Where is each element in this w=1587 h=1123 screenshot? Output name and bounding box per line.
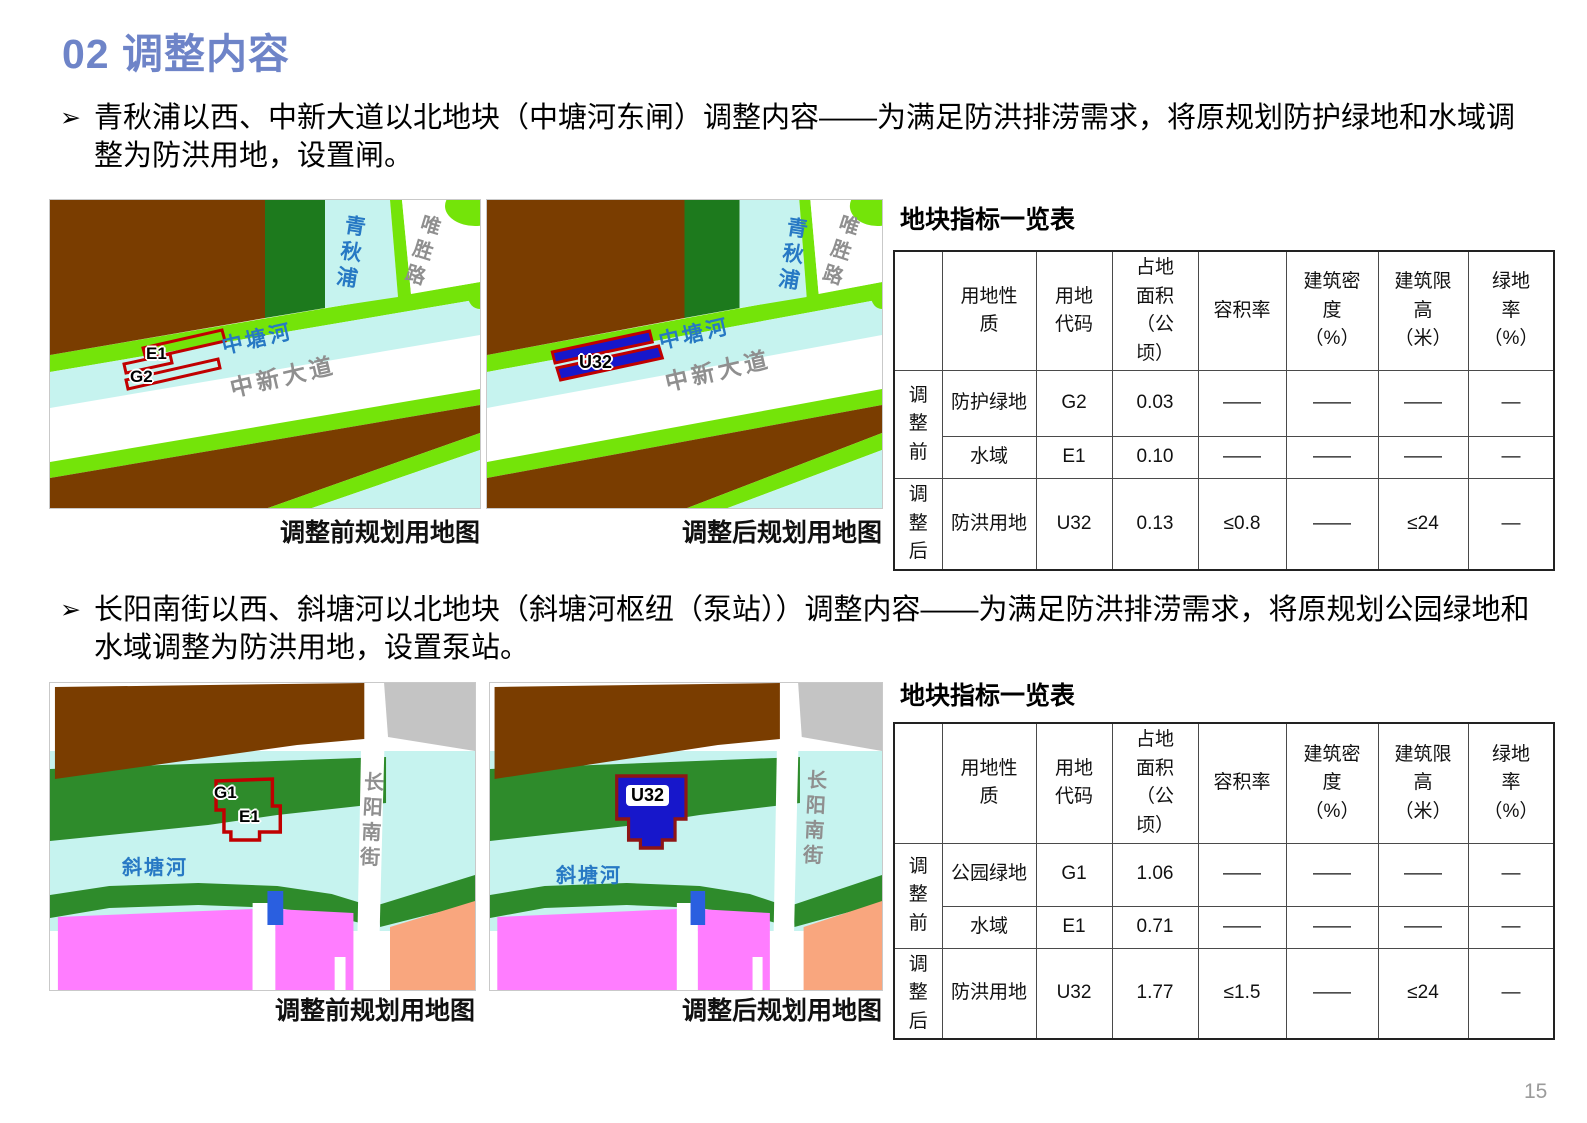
table-cell: U32 [1036, 479, 1112, 570]
header-cell: 绿地率（%） [1468, 723, 1554, 843]
page-title: 02 调整内容 [62, 20, 290, 80]
table-title-1: 地块指标一览表 [900, 200, 1075, 236]
table-cell: —— [1378, 437, 1468, 479]
table-cell: —— [1378, 906, 1468, 948]
table-cell: —— [1378, 843, 1468, 906]
table-cell: — [1468, 948, 1554, 1039]
bullet-1-text: 青秋浦以西、中新大道以北地块（中塘河东闸）调整内容——为满足防洪排涝需求，将原规… [94, 99, 1522, 175]
bullet-2-text: 长阳南街以西、斜塘河以北地块（斜塘河枢纽（泵站））调整内容——为满足防洪排涝需求… [94, 591, 1532, 667]
bullet-arrow-icon: ➢ [60, 591, 81, 667]
header-cell: 建筑限高（米） [1378, 251, 1468, 371]
header-cell: 建筑密度（%） [1286, 251, 1378, 371]
table-cell: 防护绿地 [942, 371, 1036, 437]
indicator-table-2: 用地性质 用地代码 占地面积（公顷） 容积率 建筑密度（%） 建筑限高（米） 绿… [893, 722, 1555, 1040]
river-label-xietanghe: 斜塘河 [122, 851, 188, 880]
map-after-site1: 青秋浦 唯胜路 中塘河 中新大道 U32 [487, 200, 882, 508]
table-cell: ≤1.5 [1198, 948, 1286, 1039]
header-cell: 容积率 [1198, 723, 1286, 843]
table-row: 水域 E1 0.71 —— —— —— — [894, 906, 1554, 948]
page-number: 15 [1524, 1080, 1547, 1104]
table-header-row: 用地性质 用地代码 占地面积（公顷） 容积率 建筑密度（%） 建筑限高（米） 绿… [894, 251, 1554, 371]
table-cell: ≤24 [1378, 479, 1468, 570]
table-cell: 水域 [942, 906, 1036, 948]
row-group-cell: 调整后 [894, 479, 942, 570]
table-cell: 水域 [942, 437, 1036, 479]
table-cell: —— [1286, 371, 1378, 437]
map-after-site2: 斜塘河 长阳南街 U32 [490, 683, 882, 990]
table-cell: 防洪用地 [942, 948, 1036, 1039]
map-caption-before-2: 调整前规划用地图 [50, 991, 475, 1027]
table-cell: —— [1286, 437, 1378, 479]
header-cell: 绿地率（%） [1468, 251, 1554, 371]
header-cell: 建筑限高（米） [1378, 723, 1468, 843]
table-cell: —— [1286, 843, 1378, 906]
table-cell: 公园绿地 [942, 843, 1036, 906]
table-cell: G1 [1036, 843, 1112, 906]
table-cell: — [1468, 437, 1554, 479]
table-cell: ≤24 [1378, 948, 1468, 1039]
bullet-arrow-icon: ➢ [60, 99, 81, 175]
table-cell: ≤0.8 [1198, 479, 1286, 570]
map-before-site1: 青秋浦 唯胜路 中塘河 中新大道 E1 G2 [50, 200, 480, 508]
header-cell: 用地性质 [942, 251, 1036, 371]
header-cell: 占地面积（公顷） [1112, 251, 1198, 371]
table-header-row: 用地性质 用地代码 占地面积（公顷） 容积率 建筑密度（%） 建筑限高（米） 绿… [894, 723, 1554, 843]
header-cell: 建筑密度（%） [1286, 723, 1378, 843]
table-cell: 0.71 [1112, 906, 1198, 948]
header-cell: 用地代码 [1036, 251, 1112, 371]
indicator-table-1: 用地性质 用地代码 占地面积（公顷） 容积率 建筑密度（%） 建筑限高（米） 绿… [893, 250, 1555, 571]
indicator-table-1-wrap: 用地性质 用地代码 占地面积（公顷） 容积率 建筑密度（%） 建筑限高（米） 绿… [893, 250, 1555, 571]
parcel-label-g1: G1 [214, 783, 237, 803]
table-row: 调整前 防护绿地 G2 0.03 —— —— —— — [894, 371, 1554, 437]
table-cell: —— [1198, 843, 1286, 906]
table-row: 调整后 防洪用地 U32 1.77 ≤1.5 —— ≤24 — [894, 948, 1554, 1039]
map-before-site2: 斜塘河 长阳南街 G1 E1 [50, 683, 475, 990]
parcel-label-e1: E1 [239, 807, 260, 827]
header-cell [894, 723, 942, 843]
table-cell: E1 [1036, 906, 1112, 948]
table-row: 调整后 防洪用地 U32 0.13 ≤0.8 —— ≤24 — [894, 479, 1554, 570]
table-cell: —— [1378, 371, 1468, 437]
table-cell: —— [1198, 371, 1286, 437]
bullet-2: ➢ 长阳南街以西、斜塘河以北地块（斜塘河枢纽（泵站））调整内容——为满足防洪排涝… [60, 591, 1532, 667]
map-caption-before-1: 调整前规划用地图 [50, 513, 480, 549]
table-title-2: 地块指标一览表 [900, 676, 1075, 712]
table-row: 调整前 公园绿地 G1 1.06 —— —— —— — [894, 843, 1554, 906]
header-cell: 占地面积（公顷） [1112, 723, 1198, 843]
table-cell: —— [1198, 437, 1286, 479]
table-cell: —— [1286, 479, 1378, 570]
river-label-xietanghe: 斜塘河 [556, 859, 622, 888]
indicator-table-2-wrap: 用地性质 用地代码 占地面积（公顷） 容积率 建筑密度（%） 建筑限高（米） 绿… [893, 722, 1555, 1040]
table-row: 水域 E1 0.10 —— —— —— — [894, 437, 1554, 479]
parcel-label-u32: U32 [579, 352, 612, 373]
bullet-1: ➢ 青秋浦以西、中新大道以北地块（中塘河东闸）调整内容——为满足防洪排涝需求，将… [60, 99, 1522, 175]
header-cell: 用地性质 [942, 723, 1036, 843]
table-cell: —— [1286, 906, 1378, 948]
header-cell: 容积率 [1198, 251, 1286, 371]
table-cell: E1 [1036, 437, 1112, 479]
slide: 02 调整内容 ➢ 青秋浦以西、中新大道以北地块（中塘河东闸）调整内容——为满足… [0, 0, 1587, 1123]
table-cell: — [1468, 479, 1554, 570]
parcel-label-e1: E1 [146, 344, 167, 364]
table-cell: 0.10 [1112, 437, 1198, 479]
table-cell: 1.06 [1112, 843, 1198, 906]
parcel-label-u32: U32 [626, 785, 669, 806]
table-cell: —— [1286, 948, 1378, 1039]
table-cell: 0.13 [1112, 479, 1198, 570]
table-cell: —— [1198, 906, 1286, 948]
table-cell: U32 [1036, 948, 1112, 1039]
row-group-cell: 调整后 [894, 948, 942, 1039]
table-cell: G2 [1036, 371, 1112, 437]
row-group-cell: 调整前 [894, 843, 942, 948]
land-use-map-graphic [487, 200, 882, 508]
table-cell: — [1468, 906, 1554, 948]
table-cell: 1.77 [1112, 948, 1198, 1039]
table-cell: 0.03 [1112, 371, 1198, 437]
map-caption-after-1: 调整后规划用地图 [487, 513, 882, 549]
row-group-cell: 调整前 [894, 371, 942, 479]
header-cell [894, 251, 942, 371]
table-cell: — [1468, 843, 1554, 906]
header-cell: 用地代码 [1036, 723, 1112, 843]
table-cell: 防洪用地 [942, 479, 1036, 570]
table-cell: — [1468, 371, 1554, 437]
land-use-map-graphic [50, 683, 475, 990]
parcel-label-g2: G2 [130, 367, 153, 387]
map-caption-after-2: 调整后规划用地图 [490, 991, 882, 1027]
